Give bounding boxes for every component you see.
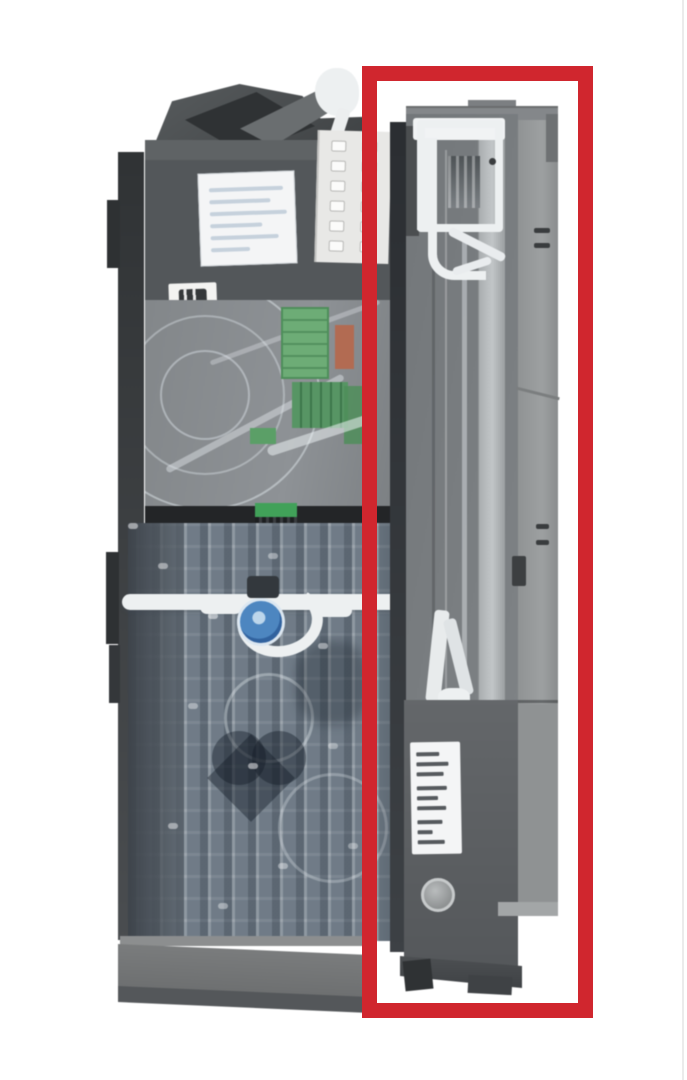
internal-shadow <box>296 641 368 725</box>
scribble-line <box>211 247 250 252</box>
orange-component <box>335 325 354 369</box>
green-circuit-edge <box>344 386 364 444</box>
product-photo <box>0 0 687 1080</box>
green-component <box>250 428 276 444</box>
keypad-button <box>329 240 344 251</box>
base-lip <box>120 936 368 946</box>
left-mount-tab <box>106 552 119 644</box>
green-circuit-board <box>292 382 348 428</box>
photo-edge-line <box>682 0 684 1080</box>
upper-transparent-cover <box>145 300 395 508</box>
scribble-line <box>211 234 279 240</box>
red-highlight-box <box>362 66 593 1018</box>
reflection-speckles <box>128 523 138 529</box>
scribble-line <box>210 222 262 228</box>
keypad-button <box>331 160 346 171</box>
coin-track-arc <box>160 350 250 440</box>
keypad-button <box>329 220 344 231</box>
green-connector <box>255 503 297 517</box>
blue-thumb-knob <box>237 598 285 646</box>
scribble-line <box>209 198 270 204</box>
left-mount-tab <box>107 200 120 268</box>
retainer-clamp-wing <box>200 600 242 614</box>
clamp-notch <box>247 576 279 598</box>
handwritten-label <box>197 170 297 266</box>
scribble-line <box>209 186 283 193</box>
keypad-button <box>330 200 345 211</box>
left-mount-tab <box>109 645 120 703</box>
keypad-button <box>331 140 346 151</box>
green-circuit-board <box>281 307 329 379</box>
keypad-button <box>330 180 345 191</box>
tube-shadow-column <box>128 523 184 941</box>
scribble-line <box>210 210 287 217</box>
